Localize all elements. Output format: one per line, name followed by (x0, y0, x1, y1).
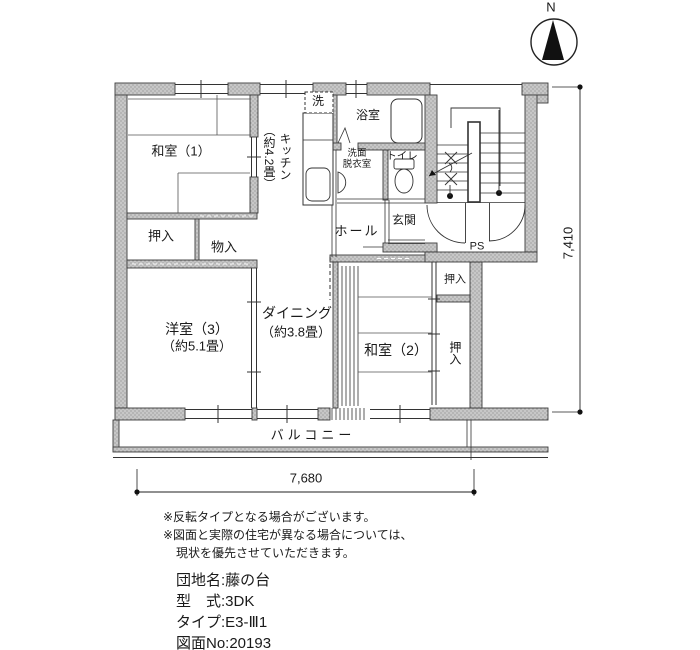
compass-n-label: N (546, 1, 555, 16)
floorplan-page: N 和室（1） キッチン （約4.2畳） 洗 浴室 洗面 脱衣室 トイレ 玄関 … (0, 0, 700, 650)
closet-label-oshiire2: 押入 (444, 274, 466, 287)
kitchen-name: キッチン (277, 125, 293, 190)
room-label-senmen: 洗面 脱衣室 (343, 149, 372, 171)
spec-danchi-name: 団地名:藤の台 (176, 569, 270, 590)
note-line-2: ※図面と実際の住宅が異なる場合については、 (163, 526, 412, 543)
room-label-toilet: トイレ (386, 150, 418, 162)
room-size-dining: （約3.8畳） (261, 326, 331, 341)
closet-label-oshiire1: 押入 (148, 230, 174, 245)
note-line-3: 現状を優先させていただきます。 (176, 544, 355, 561)
spec-drawing-no: 図面No:20193 (176, 632, 271, 650)
room-label-kitchen: キッチン （約4.2畳） (261, 125, 293, 190)
room-label-hall: ホール (334, 225, 379, 240)
north-compass (531, 19, 577, 65)
room-label-washitsu2: 和室（2） (364, 342, 428, 358)
room-label-bath: 浴室 (356, 109, 380, 123)
dimension-horizontal: 7,680 (290, 472, 323, 487)
note-line-1: ※反転タイプとなる場合がございます。 (163, 508, 376, 525)
dimension-vertical: 7,410 (562, 227, 577, 260)
closet-label-monoire: 物入 (211, 241, 237, 256)
kitchen-size: （約4.2畳） (261, 125, 277, 190)
balcony-label: バルコニー (271, 429, 356, 444)
closet-label-oshiire3: 押入 (447, 341, 461, 365)
senmen-line2: 脱衣室 (343, 160, 372, 171)
spec-type: 型 式:3DK (176, 590, 254, 611)
room-label-yoshitsu3: 洋室（3） (165, 321, 229, 337)
spec-plan-type: タイプ:E3-Ⅲ1 (176, 611, 267, 632)
room-label-washitsu1: 和室（1） (151, 145, 210, 160)
washer-label: 洗 (312, 95, 324, 109)
ps-label: PS (470, 241, 485, 254)
room-size-yoshitsu3: （約5.1畳） (162, 340, 232, 355)
room-label-dining: ダイニング (262, 305, 332, 321)
room-label-genkan: 玄関 (392, 214, 416, 228)
